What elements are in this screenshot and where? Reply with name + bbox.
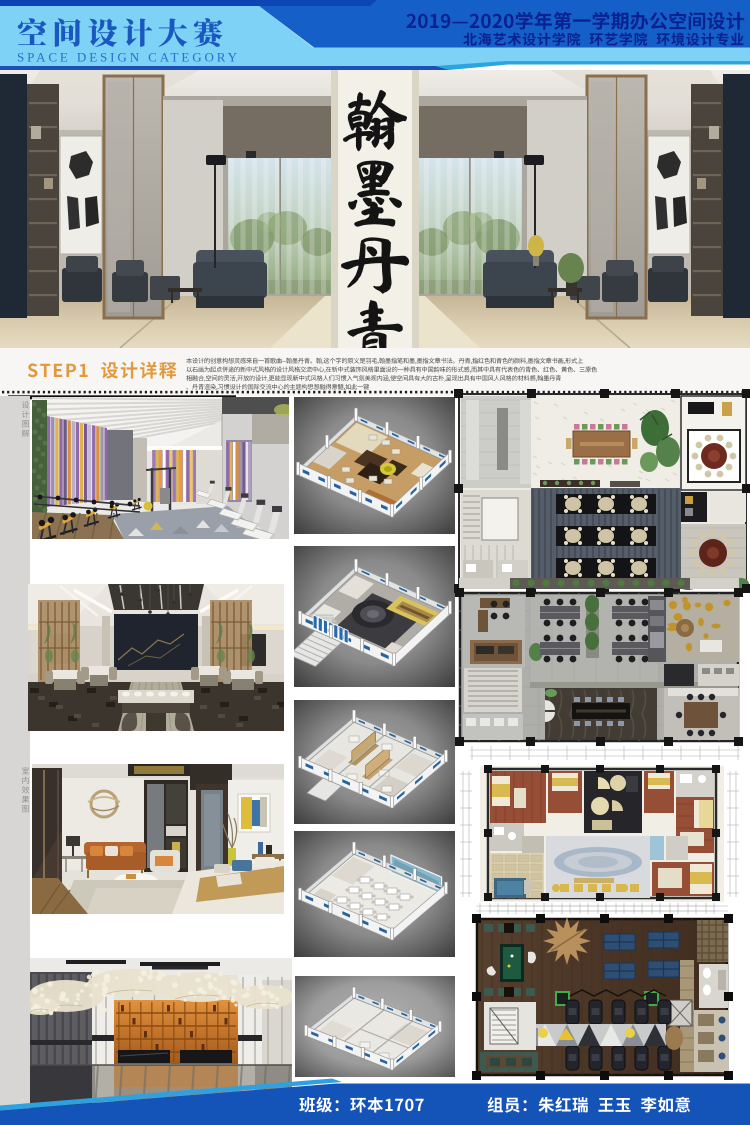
svg-text:SPACE DESIGN CATEGORY: SPACE DESIGN CATEGORY xyxy=(17,50,240,65)
